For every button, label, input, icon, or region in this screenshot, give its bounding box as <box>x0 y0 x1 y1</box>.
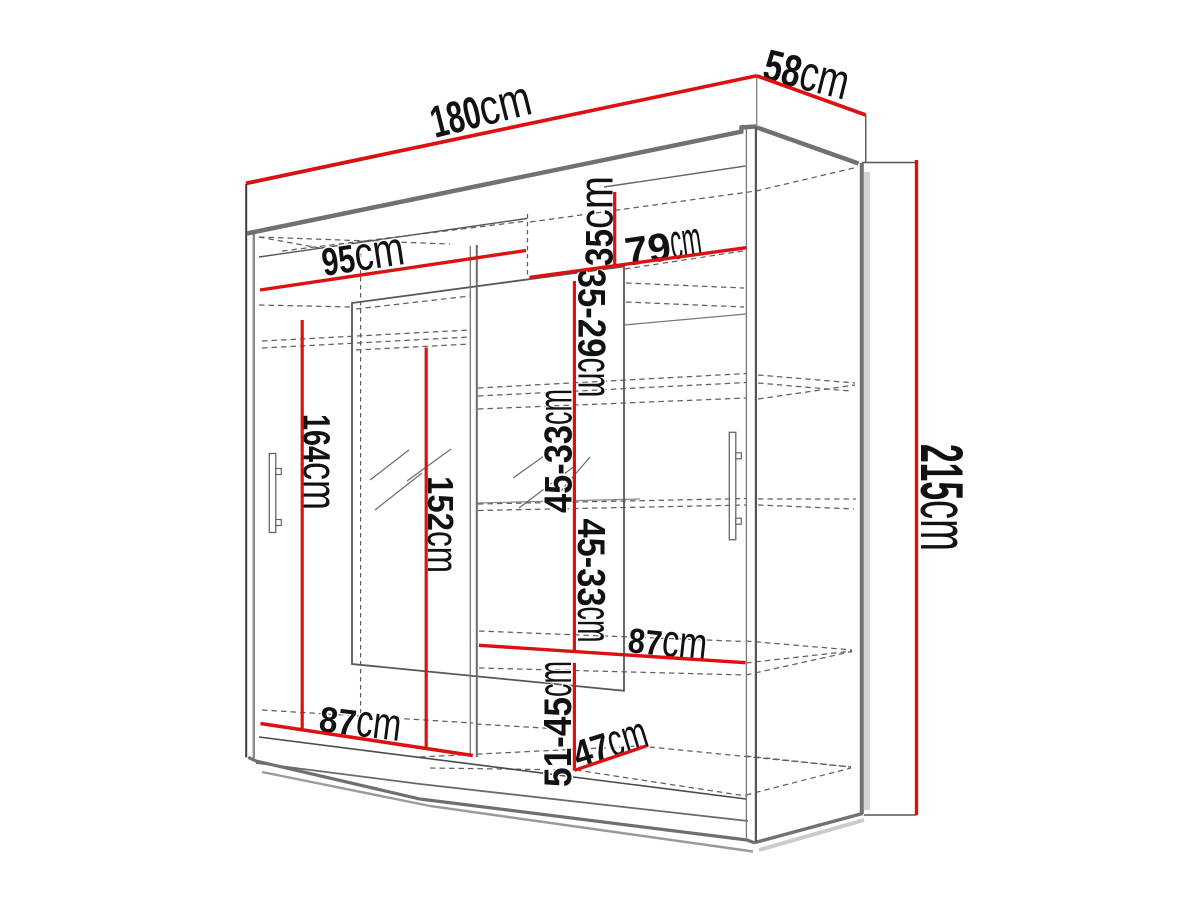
svg-text:cm: cm <box>293 462 346 510</box>
svg-text:79: 79 <box>622 225 674 275</box>
svg-text:cm: cm <box>660 614 710 670</box>
